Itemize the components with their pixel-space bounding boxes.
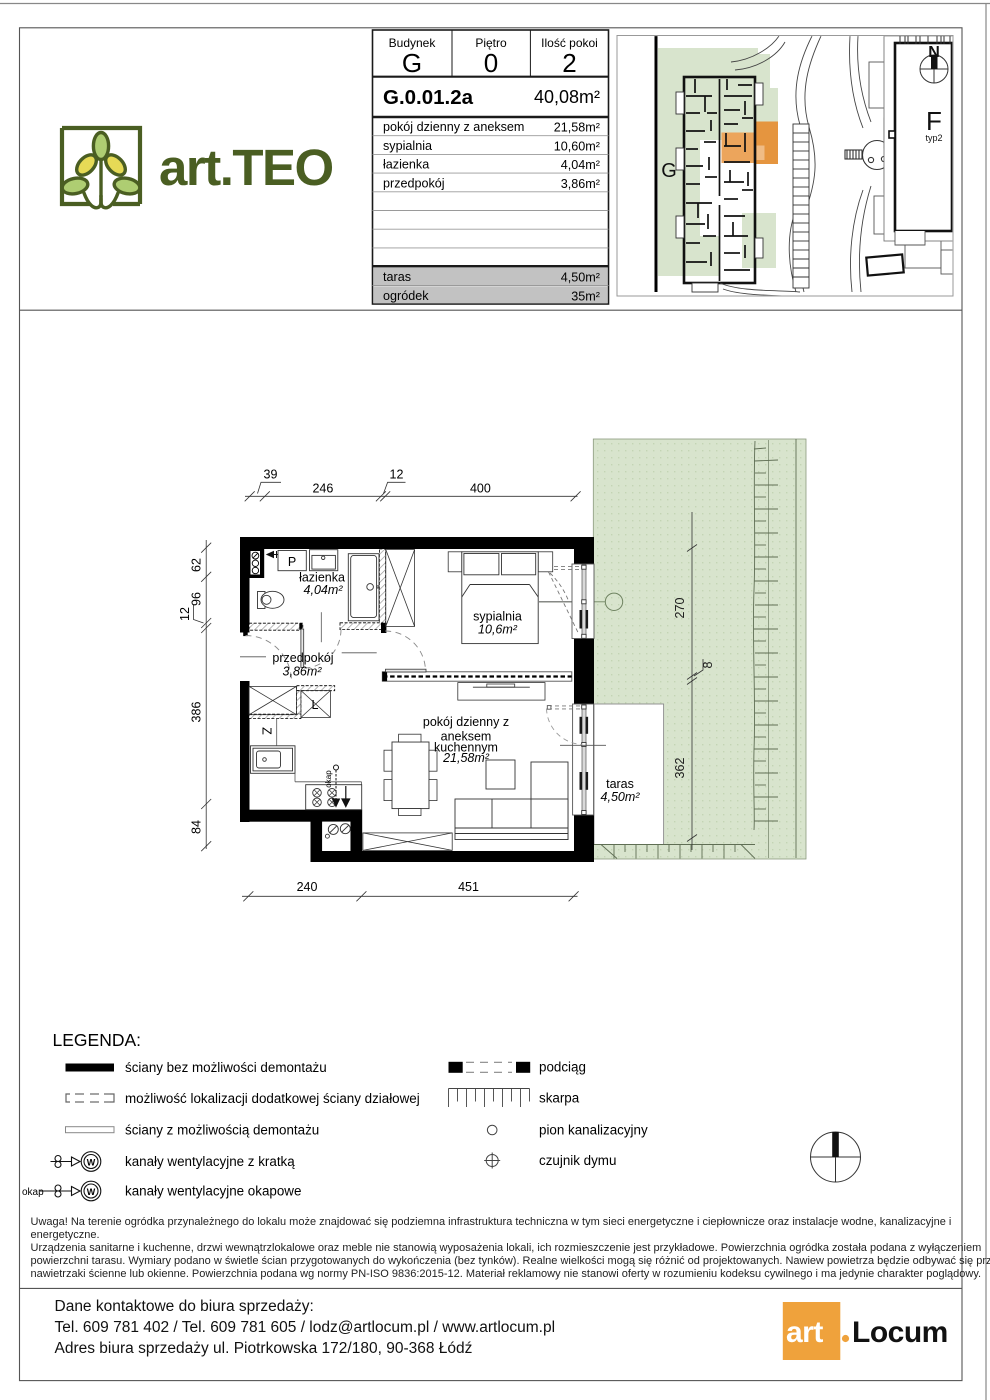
svg-text:skarpa: skarpa (539, 1091, 580, 1106)
svg-text:LEGENDA:: LEGENDA: (53, 1030, 142, 1050)
svg-text:40,08m²: 40,08m² (534, 87, 600, 107)
svg-text:10,60m²: 10,60m² (554, 140, 600, 154)
svg-text:ściany z możliwością demontażu: ściany z możliwością demontażu (125, 1123, 319, 1138)
svg-text:łazienka: łazienka (383, 158, 429, 172)
svg-text:84: 84 (190, 820, 204, 834)
svg-text:Urządzenia sanitarne i kuchenn: Urządzenia sanitarne i kuchenne, drzwi w… (31, 1242, 982, 1254)
svg-text:G: G (661, 160, 677, 182)
svg-text:12: 12 (390, 468, 404, 482)
svg-text:energetyczne.: energetyczne. (31, 1229, 100, 1241)
svg-text:3,86m²: 3,86m² (561, 177, 600, 191)
svg-text:pokój dzienny z: pokój dzienny z (423, 715, 509, 729)
svg-text:10,6m²: 10,6m² (478, 623, 518, 637)
svg-text:przedpokój: przedpokój (272, 651, 333, 665)
svg-text:3,86m²: 3,86m² (283, 665, 323, 679)
svg-text:powierzchni tarasu. Wymiary po: powierzchni tarasu. Wymiary podano w świ… (31, 1255, 990, 1267)
svg-text:F: F (926, 106, 942, 136)
svg-text:39: 39 (264, 468, 278, 482)
svg-text:4,50m²: 4,50m² (561, 271, 600, 285)
svg-text:Tel. 609 781 402 / Tel. 609 78: Tel. 609 781 402 / Tel. 609 781 605 / lo… (55, 1319, 556, 1336)
svg-text:okap: okap (22, 1187, 44, 1198)
svg-text:ściany bez możliwości demontaż: ściany bez możliwości demontażu (125, 1060, 327, 1075)
svg-text:typ2: typ2 (925, 133, 942, 143)
svg-text:nawietrzaki ścienne lub okienn: nawietrzaki ścienne lub okienne. Powierz… (31, 1268, 982, 1280)
svg-text:Dane kontaktowe do biura sprze: Dane kontaktowe do biura sprzedaży: (55, 1298, 314, 1315)
svg-text:ogródek: ogródek (383, 289, 429, 303)
svg-text:4,50m²: 4,50m² (601, 790, 641, 804)
svg-text:400: 400 (470, 482, 491, 496)
svg-text:12: 12 (178, 607, 192, 621)
svg-text:21,58m²: 21,58m² (442, 751, 490, 765)
svg-text:35m²: 35m² (571, 290, 600, 304)
svg-text:Uwaga! Na terenie ogródka przy: Uwaga! Na terenie ogródka przynależnego … (31, 1216, 952, 1228)
svg-text:386: 386 (190, 702, 204, 723)
svg-text:kanały wentylacyjne z kratką: kanały wentylacyjne z kratką (125, 1154, 295, 1169)
svg-text:246: 246 (312, 482, 333, 496)
svg-text:podciąg: podciąg (539, 1060, 586, 1075)
svg-text:W: W (87, 1187, 96, 1197)
svg-text:L: L (312, 698, 319, 712)
svg-text:62: 62 (190, 558, 204, 572)
svg-text:pokój dzienny z aneksem: pokój dzienny z aneksem (383, 120, 524, 134)
svg-text:4,04m²: 4,04m² (304, 583, 344, 597)
svg-text:G: G (402, 48, 422, 78)
svg-text:Adres biura sprzedaży ul. Piot: Adres biura sprzedaży ul. Piotrkowska 17… (55, 1340, 473, 1357)
svg-text:art.TEO: art.TEO (159, 139, 333, 196)
svg-text:240: 240 (297, 880, 318, 894)
svg-text:451: 451 (458, 880, 479, 894)
svg-text:taras: taras (383, 270, 411, 284)
svg-text:G.0.01.2a: G.0.01.2a (383, 86, 474, 109)
svg-text:sypialnia: sypialnia (473, 610, 522, 624)
svg-text:270: 270 (673, 598, 687, 619)
svg-text:sypialnia: sypialnia (383, 139, 432, 153)
svg-text:4,04m²: 4,04m² (561, 158, 600, 172)
svg-text:W: W (87, 1158, 96, 1168)
svg-text:96: 96 (190, 592, 204, 606)
svg-text:21,58m²: 21,58m² (554, 121, 600, 135)
svg-text:okap: okap (324, 770, 333, 788)
svg-text:8: 8 (701, 661, 715, 668)
svg-text:pion kanalizacyjny: pion kanalizacyjny (539, 1123, 648, 1138)
svg-text:czujnik dymu: czujnik dymu (539, 1153, 616, 1168)
svg-text:P: P (288, 555, 296, 569)
svg-text:możliwość lokalizacji dodatkow: możliwość lokalizacji dodatkowej ściany … (125, 1091, 420, 1106)
svg-text:0: 0 (484, 48, 498, 78)
svg-text:przedpokój: przedpokój (383, 176, 445, 190)
svg-text:362: 362 (673, 758, 687, 779)
svg-text:N: N (928, 44, 940, 61)
svg-text:art: art (786, 1316, 823, 1349)
svg-text:taras: taras (606, 777, 634, 791)
svg-text:Z: Z (260, 727, 274, 735)
svg-text:Locum: Locum (852, 1316, 948, 1349)
svg-text:2: 2 (562, 48, 576, 78)
svg-text:kanały wentylacyjne okapowe: kanały wentylacyjne okapowe (125, 1184, 301, 1199)
